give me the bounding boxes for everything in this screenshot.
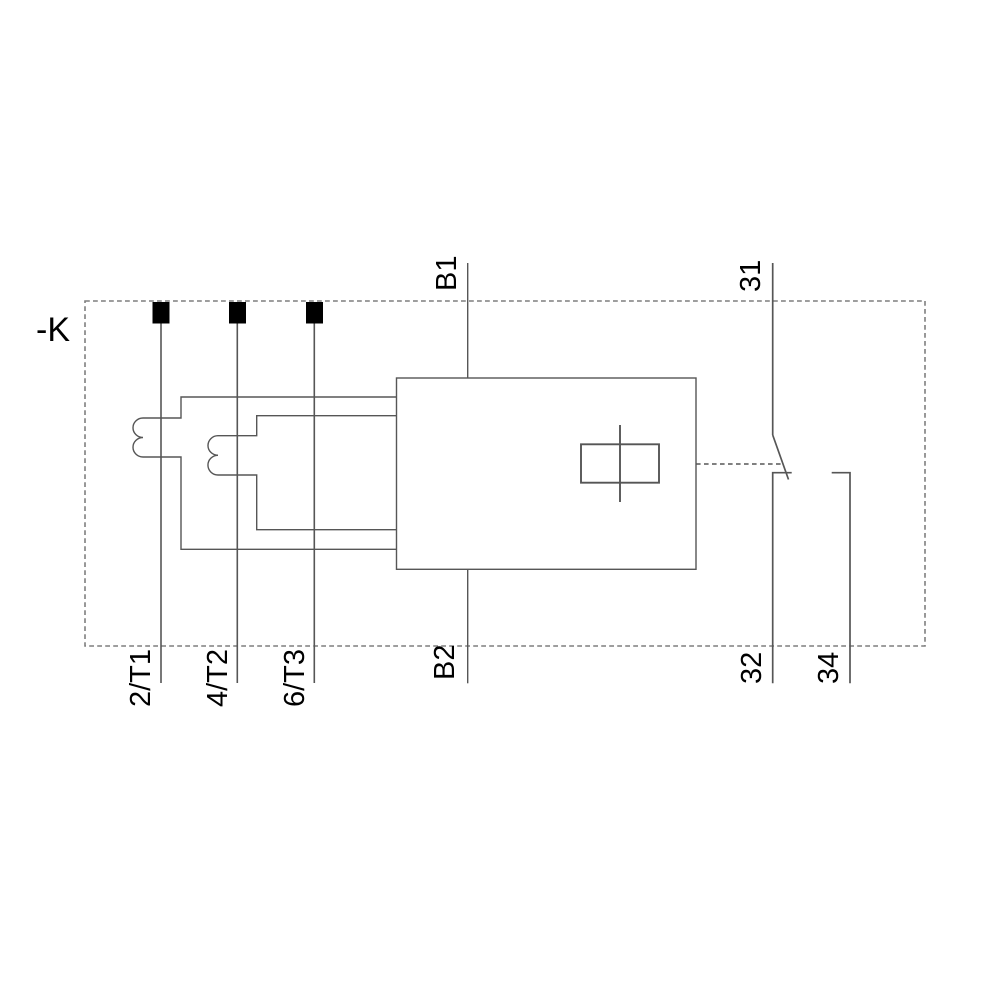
terminal-label-t2: 4/T2 (202, 649, 234, 707)
terminal-label-t3: 6/T3 (279, 649, 311, 707)
terminal-label-32: 32 (736, 652, 768, 684)
overload-relay-schematic: -K 2/T1 4/T2 6/T3 (0, 0, 1000, 1000)
aux-nc-line-32 (773, 473, 792, 684)
terminal-label-b2: B2 (429, 645, 461, 680)
trip-element-group (581, 425, 659, 502)
device-designation-label: -K (36, 311, 70, 349)
device-boundary-dashed (85, 301, 925, 646)
terminal-label-31: 31 (735, 260, 767, 292)
current-transformer-loop-t1 (133, 397, 397, 549)
relay-body (397, 378, 697, 569)
terminal-label-b1: B1 (431, 256, 463, 291)
schematic-page: -K 2/T1 4/T2 6/T3 (0, 0, 1000, 1000)
supply-b2-group: B2 (429, 569, 468, 683)
aux-contact-group: 31 32 34 (735, 260, 850, 684)
terminal-marker-t3 (306, 302, 323, 324)
supply-b1-group: B1 (431, 256, 468, 378)
terminal-marker-t1 (153, 302, 170, 324)
terminal-marker-t2 (229, 302, 246, 324)
aux-no-line-34 (832, 473, 850, 684)
current-transformer-loop-t2 (208, 416, 397, 530)
terminal-label-34: 34 (813, 652, 845, 684)
terminal-label-t1: 2/T1 (125, 649, 157, 707)
